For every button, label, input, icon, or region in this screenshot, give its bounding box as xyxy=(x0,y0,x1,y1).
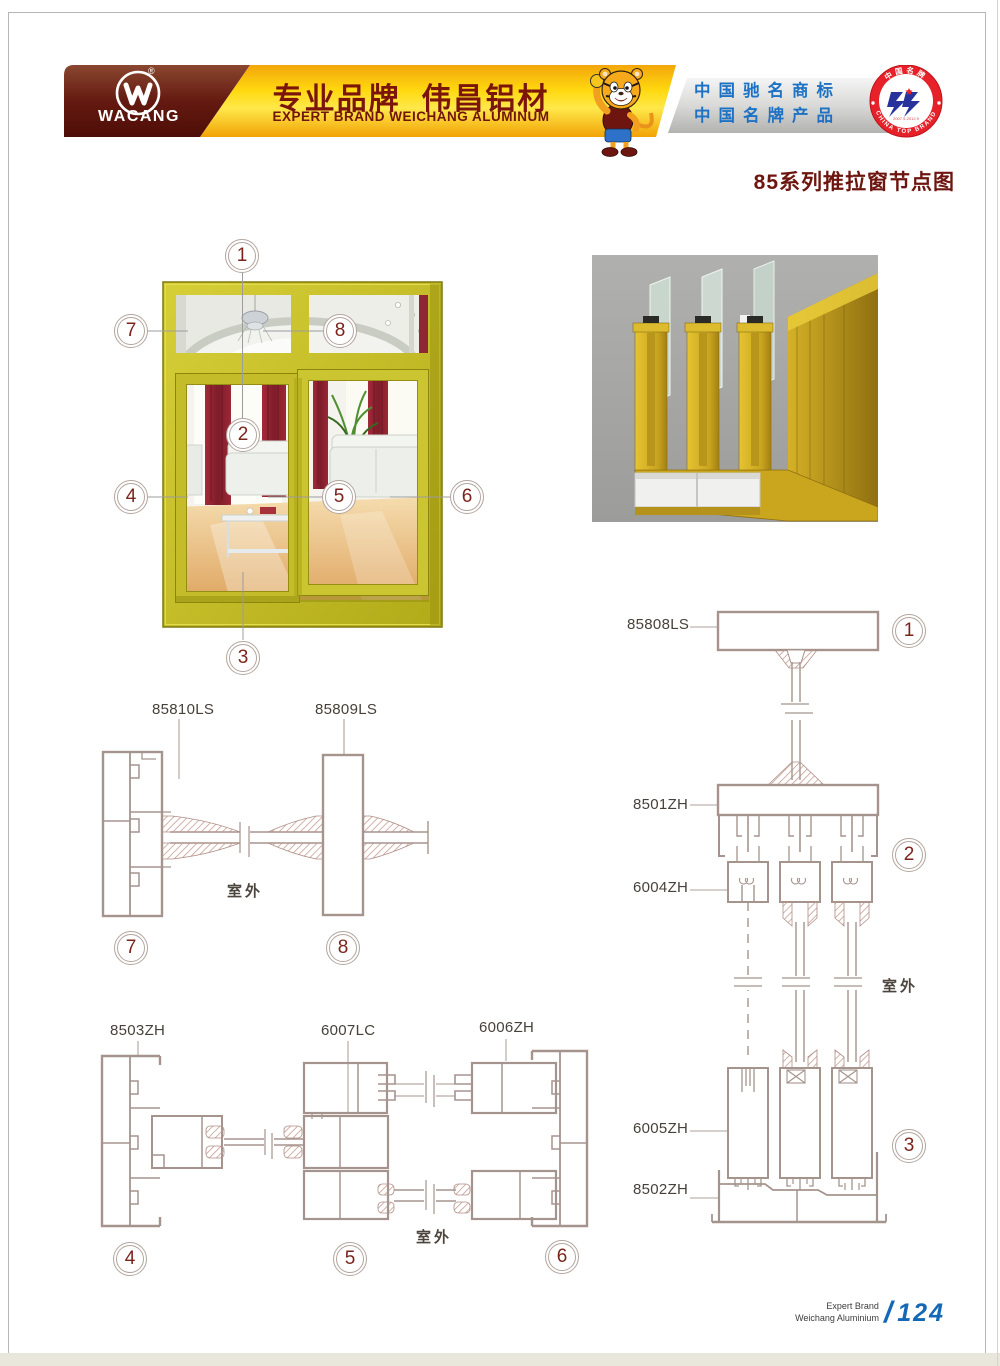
window-callout-4: 4 xyxy=(114,480,148,514)
diagram-callout-5: 5 xyxy=(333,1242,367,1276)
window-callout-5: 5 xyxy=(322,480,356,514)
diagram-callout-4: 4 xyxy=(113,1242,147,1276)
outdoor-label-mid-left: 室外 xyxy=(227,880,263,901)
leader-lines xyxy=(138,1039,506,1114)
part-label-6007LC: 6007LC xyxy=(321,1022,375,1039)
window-callout-1: 1 xyxy=(225,239,259,273)
honors-text: 中国驰名商标 中国名牌产品 xyxy=(694,79,862,129)
banner-slogan-en: EXPERT BRAND WEICHANG ALUMINUM xyxy=(240,109,582,124)
registered-trademark-symbol: ® xyxy=(148,66,155,76)
badge-dates-text: 2007.9-2012.9 xyxy=(893,116,920,121)
window-callout-6: 6 xyxy=(450,480,484,514)
leader-lines xyxy=(179,719,344,779)
window-callout-3: 3 xyxy=(226,641,260,675)
diagram-callout-8: 8 xyxy=(326,931,360,965)
outdoor-label-bottom-left: 室外 xyxy=(416,1226,452,1247)
diagram-callout-1: 1 xyxy=(892,614,926,648)
diagram-right-column xyxy=(615,600,945,1260)
profile-3d-render xyxy=(592,255,878,522)
diagram-callout-2: 2 xyxy=(892,838,926,872)
leader-lines xyxy=(690,627,728,1198)
part-label-6004ZH: 6004ZH xyxy=(633,879,688,896)
diagram-mid-left xyxy=(90,695,450,975)
honors-line2: 中国名牌产品 xyxy=(694,104,862,129)
part-label-8501ZH: 8501ZH xyxy=(633,796,688,813)
part-label-85809LS: 85809LS xyxy=(315,701,377,718)
page-outer-bottom-strip xyxy=(0,1353,1000,1366)
honors-line1: 中国驰名商标 xyxy=(694,79,862,104)
window-callout-7: 7 xyxy=(114,314,148,348)
outdoor-label-right: 室外 xyxy=(882,975,918,996)
footer-brand-line2: Weichang Aluminium xyxy=(795,1313,879,1325)
window-callout-2: 2 xyxy=(226,418,260,452)
china-top-brand-badge: 中国名牌 CHINA TOP BRAND 2007.9-2012.9 xyxy=(870,65,942,137)
part-label-6005ZH: 6005ZH xyxy=(633,1120,688,1137)
gaskets xyxy=(162,816,414,859)
render-tracks xyxy=(633,316,773,470)
part-label-85808LS: 85808LS xyxy=(627,616,689,633)
page-outer-right-line xyxy=(997,0,998,1366)
part-label-6006ZH: 6006ZH xyxy=(479,1019,534,1036)
part-label-85810LS: 85810LS xyxy=(152,701,214,718)
diagram-bottom-left xyxy=(90,1015,610,1265)
footer-brand-line1: Expert Brand xyxy=(795,1301,879,1313)
window-figure xyxy=(110,245,490,680)
footer: Expert Brand Weichang Aluminium / 124 xyxy=(700,1298,945,1328)
diagram-callout-6: 6 xyxy=(545,1240,579,1274)
badge-star-left-icon xyxy=(871,101,874,104)
footer-slash: / xyxy=(884,1298,892,1328)
page-title: 85系列推拉窗节点图 xyxy=(560,166,955,196)
window-callout-8: 8 xyxy=(323,314,357,348)
diagram-callout-7: 7 xyxy=(114,931,148,965)
footer-page-number: 124 xyxy=(897,1301,945,1326)
part-label-8502ZH: 8502ZH xyxy=(633,1181,688,1198)
diagram-callout-3: 3 xyxy=(892,1129,926,1163)
part-label-8503ZH: 8503ZH xyxy=(110,1022,165,1039)
badge-star-right-icon xyxy=(937,101,940,104)
footer-brand-text: Expert Brand Weichang Aluminium xyxy=(795,1301,879,1324)
wacang-logo-wordmark: WACANG xyxy=(93,108,185,126)
